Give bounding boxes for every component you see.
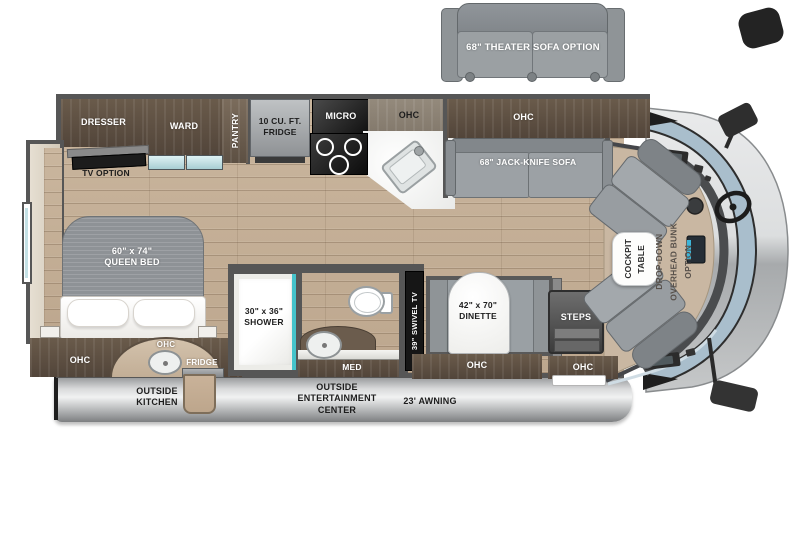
burner — [329, 155, 349, 175]
med-label: MED — [322, 362, 382, 373]
living-ohc-label: OHC — [447, 112, 600, 123]
bedroom-window — [22, 202, 32, 284]
entry-step-outside — [552, 375, 606, 386]
wardrobe: WARD — [146, 99, 222, 155]
outside-entertainment-label: OUTSIDE ENTERTAINMENT CENTER — [289, 382, 385, 416]
dinette-bench-right — [533, 280, 549, 352]
sink-drain — [322, 343, 327, 348]
cooktop — [310, 133, 368, 175]
swivel-tv-label: 39" SWIVEL TV — [410, 292, 419, 350]
tv-option-label: TV OPTION — [70, 168, 142, 179]
sink-faucet — [414, 146, 424, 156]
awning-left-edge — [54, 377, 58, 420]
dinette-label: 42" x 70" DINETTE — [450, 300, 506, 321]
awning-length-label: 23' AWNING — [393, 396, 467, 407]
dresser: DRESSER — [61, 99, 146, 147]
step-tread — [554, 328, 600, 339]
ward-label: WARD — [170, 121, 198, 132]
bed-pillow — [133, 299, 195, 327]
sink-drain — [163, 361, 168, 366]
kitchen-ohc-label: OHC — [399, 110, 420, 121]
bed-pillow — [67, 299, 129, 327]
burner — [344, 138, 362, 156]
nightstand-left — [40, 326, 60, 338]
queen-bed-label: 60" x 74" QUEEN BED — [77, 246, 187, 269]
cockpit-table-label: COCKPIT TABLE — [622, 239, 648, 279]
shower-label: 30" x 36" SHOWER — [235, 306, 293, 327]
jk-armrest-left — [445, 140, 456, 196]
living-ohc: OHC — [447, 94, 650, 138]
micro-label: MICRO — [326, 111, 357, 122]
vanity-sink — [306, 331, 342, 359]
entry-ohc-label: OHC — [558, 362, 608, 373]
sofa-cushion-left — [457, 31, 533, 78]
sofa-foot — [465, 72, 475, 82]
bedroom-ohc-label: OHC — [58, 355, 102, 366]
dinette-bench-left — [430, 280, 448, 352]
sofa-foot — [527, 72, 537, 82]
fridge-10cuft: 10 CU. FT. FRIDGE — [250, 99, 310, 157]
overhead-bunk-label: DROP-DOWN OVERHEAD BUNK OPTION — [652, 223, 695, 301]
jack-knife-sofa: 68" JACK-KNIFE SOFA — [450, 138, 606, 198]
jack-knife-sofa-label: 68" JACK-KNIFE SOFA — [458, 157, 598, 168]
outside-fridge-label: FRIDGE — [181, 358, 223, 368]
nightstand-right — [198, 326, 217, 338]
kitchen-ohc: OHC — [368, 99, 450, 133]
wardrobe-glass-door — [186, 155, 223, 170]
fridge-label: 10 CU. FT. FRIDGE — [251, 116, 309, 137]
toilet-bowl — [348, 286, 385, 317]
toilet-seat — [354, 292, 381, 313]
fridge-vent — [255, 157, 305, 163]
microwave: MICRO — [312, 99, 370, 135]
pantry-label: PANTRY — [230, 113, 241, 148]
window-glass — [25, 208, 28, 278]
dinette-ohc-label: OHC — [452, 360, 502, 371]
burner — [316, 138, 334, 156]
step-tread — [554, 340, 600, 352]
front-wheel — [736, 5, 786, 51]
rv-floorplan: OUTSIDE KITCHEN OUTSIDE ENTERTAINMENT CE… — [0, 0, 800, 545]
overhead-bunk-note: DROP-DOWN OVERHEAD BUNK OPTION — [650, 206, 698, 318]
outside-kitchen-sink — [148, 350, 182, 375]
wardrobe-glass-door — [148, 155, 185, 170]
dresser-label: DRESSER — [81, 117, 126, 128]
outside-kitchen-ohc-label: OHC — [146, 340, 186, 350]
pantry: PANTRY — [222, 99, 248, 163]
outside-kitchen-door-flap — [183, 374, 216, 414]
